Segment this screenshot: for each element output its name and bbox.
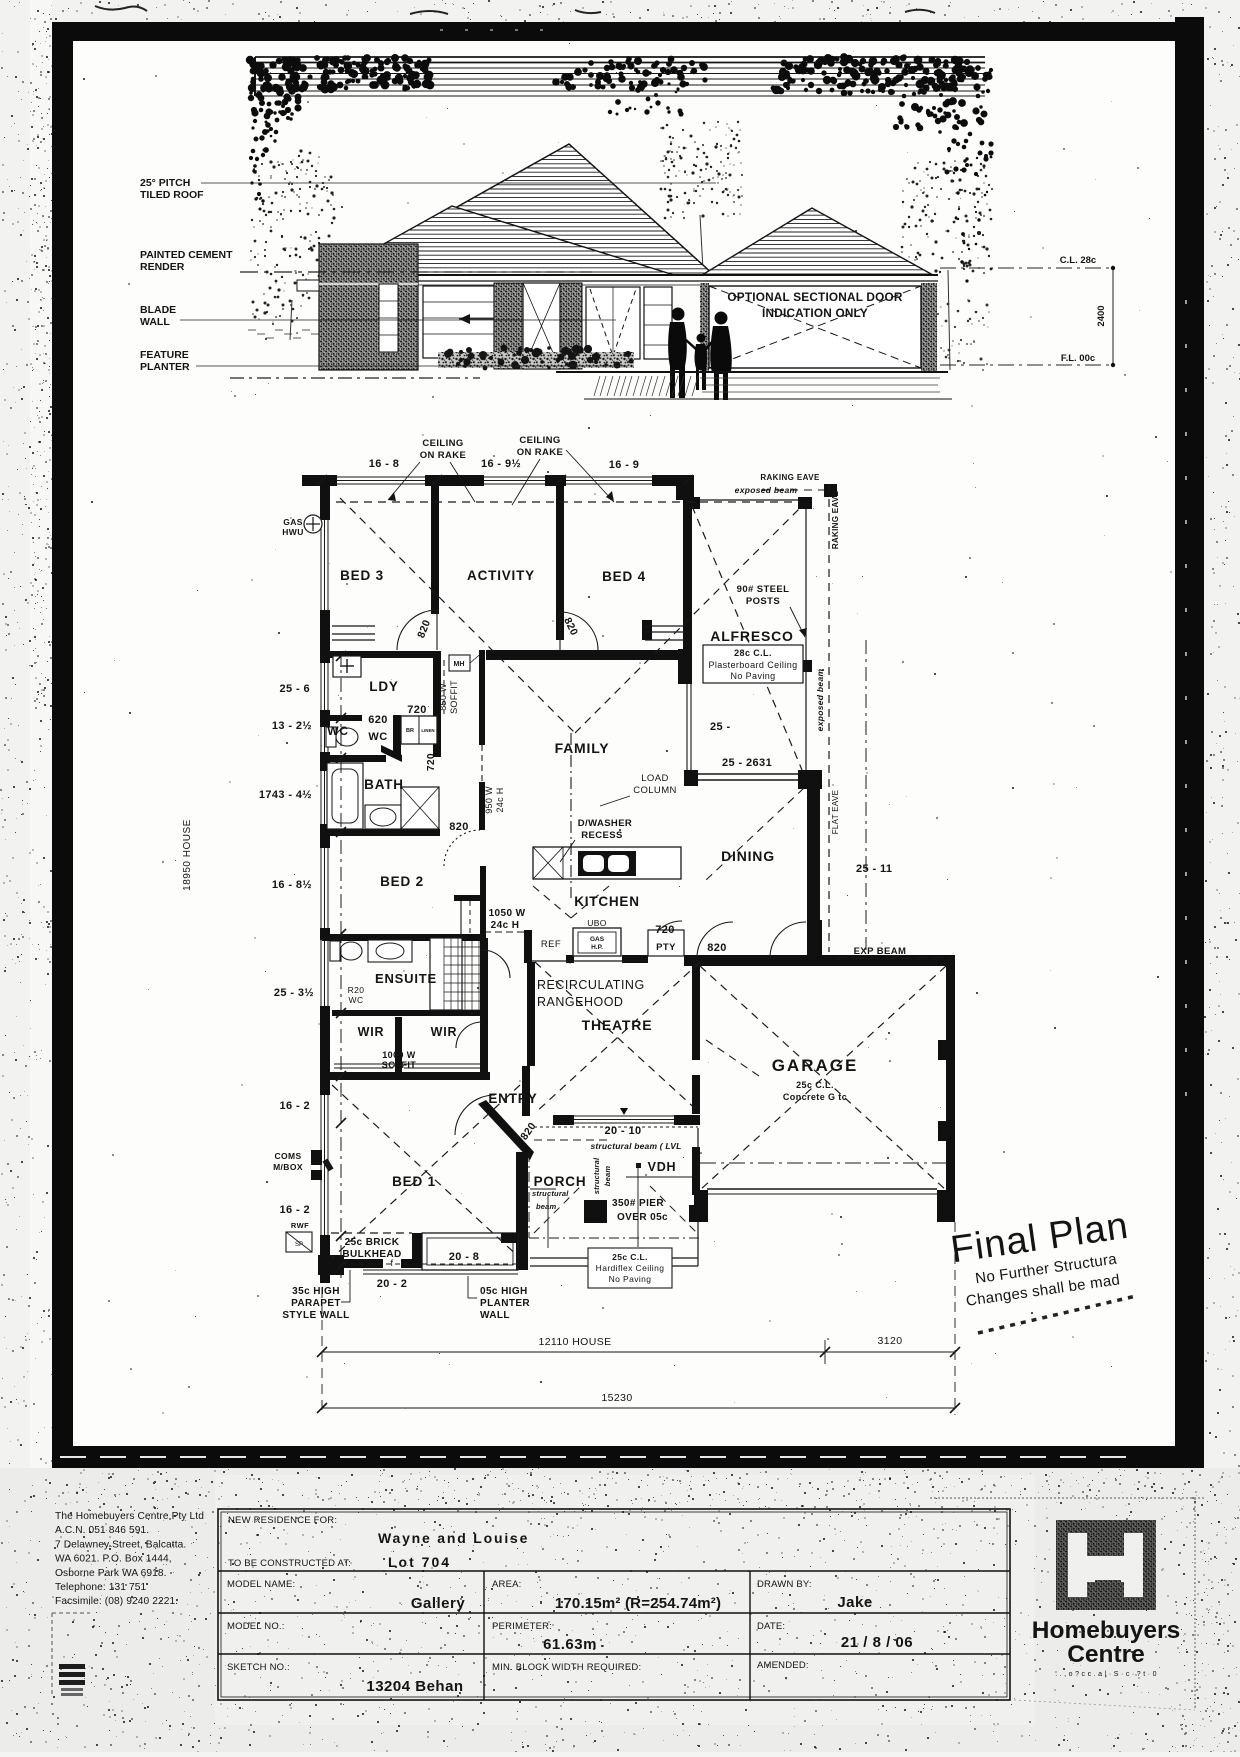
- svg-text:MH: MH: [454, 661, 465, 668]
- svg-text:20 - 8: 20 - 8: [449, 1251, 480, 1263]
- svg-text:RENDER: RENDER: [140, 261, 185, 273]
- svg-text:28c C.L.: 28c C.L.: [734, 648, 772, 658]
- svg-text:FEATURE: FEATURE: [140, 349, 189, 361]
- svg-text:720: 720: [655, 924, 675, 936]
- svg-text:12110 HOUSE: 12110 HOUSE: [538, 1336, 611, 1348]
- svg-text:Wayne and Louise: Wayne and Louise: [378, 1530, 529, 1546]
- svg-text:CEILING: CEILING: [519, 435, 560, 446]
- svg-text:AMENDED:: AMENDED:: [757, 1660, 809, 1671]
- svg-text:F.L. 00c: F.L. 00c: [1061, 353, 1095, 364]
- svg-text:BED 1: BED 1: [392, 1174, 436, 1189]
- svg-text:1743 - 4½: 1743 - 4½: [259, 789, 312, 801]
- svg-text:WALL: WALL: [480, 1310, 510, 1321]
- svg-text:950 W: 950 W: [484, 786, 494, 814]
- svg-text:CEILING: CEILING: [422, 438, 463, 449]
- svg-text:24c H: 24c H: [495, 787, 505, 812]
- svg-text:2400: 2400: [1096, 305, 1107, 326]
- svg-text:25 - 11: 25 - 11: [856, 863, 892, 875]
- svg-text:BED 4: BED 4: [602, 569, 646, 584]
- svg-text:Gallery: Gallery: [411, 1595, 466, 1612]
- svg-text:7 Delawney Street, Balcatta.: 7 Delawney Street, Balcatta.: [55, 1539, 186, 1550]
- svg-text:25c C.L.: 25c C.L.: [796, 1080, 834, 1090]
- svg-text:STYLE WALL: STYLE WALL: [282, 1310, 349, 1321]
- svg-text:25c C.L.: 25c C.L.: [612, 1252, 648, 1262]
- svg-text:PTY: PTY: [656, 942, 676, 953]
- svg-text:16 - 2: 16 - 2: [279, 1100, 310, 1112]
- svg-text:ON RAKE: ON RAKE: [517, 447, 564, 458]
- svg-text:RECIRCULATING: RECIRCULATING: [537, 978, 645, 992]
- svg-text:15230: 15230: [601, 1392, 632, 1404]
- svg-text:WIR: WIR: [431, 1025, 458, 1039]
- svg-text:PLANTER: PLANTER: [480, 1298, 530, 1309]
- svg-text:720: 720: [426, 753, 437, 771]
- svg-text:LOAD: LOAD: [641, 773, 668, 784]
- svg-text:820: 820: [707, 942, 727, 954]
- svg-text:Telephone: 131 751: Telephone: 131 751: [55, 1582, 147, 1593]
- svg-text:KITCHEN: KITCHEN: [574, 894, 640, 909]
- svg-text:D/WASHER: D/WASHER: [578, 818, 632, 829]
- svg-text:MIN. BLOCK WIDTH REQUIRED:: MIN. BLOCK WIDTH REQUIRED:: [492, 1662, 641, 1673]
- svg-text:16 - 8½: 16 - 8½: [272, 879, 312, 891]
- svg-text:Jake: Jake: [837, 1594, 872, 1611]
- svg-text:. . , o ? c c . a | · S · c ·: . . , o ? c c . a | · S · c · ? t · 0: [1055, 1671, 1157, 1678]
- svg-text:INDICATION ONLY: INDICATION ONLY: [762, 306, 868, 320]
- svg-text:Concrete G tc: Concrete G tc: [783, 1092, 847, 1102]
- svg-text:LINEN: LINEN: [421, 728, 434, 733]
- svg-text:OPTIONAL SECTIONAL DOOR: OPTIONAL SECTIONAL DOOR: [727, 290, 903, 304]
- svg-text:21 / 8 / 06: 21 / 8 / 06: [841, 1634, 913, 1651]
- svg-text:13 - 2½: 13 - 2½: [272, 720, 312, 732]
- svg-text:SOFFIT: SOFFIT: [382, 1060, 416, 1070]
- svg-text:beam: beam: [536, 1202, 557, 1211]
- svg-text:MODEL NAME:: MODEL NAME:: [227, 1579, 295, 1590]
- svg-text:WIR: WIR: [358, 1025, 385, 1039]
- svg-text:COMS: COMS: [274, 1151, 301, 1161]
- svg-text:No Paving: No Paving: [609, 1274, 652, 1284]
- svg-text:GAS: GAS: [283, 517, 303, 527]
- svg-text:WALL: WALL: [140, 316, 170, 328]
- svg-text:18950 HOUSE: 18950 HOUSE: [182, 819, 193, 891]
- svg-text:820: 820: [449, 821, 469, 833]
- svg-text:POSTS: POSTS: [746, 596, 780, 607]
- svg-text:ON RAKE: ON RAKE: [420, 450, 467, 461]
- svg-text:SKETCH NO.:: SKETCH NO.:: [227, 1662, 290, 1673]
- svg-text:structural beam ( LVL: structural beam ( LVL: [590, 1141, 681, 1151]
- svg-text:1050 W: 1050 W: [489, 908, 526, 919]
- svg-text:f: f: [391, 1258, 394, 1268]
- svg-text:25° PITCH: 25° PITCH: [140, 177, 190, 189]
- svg-text:No Paving: No Paving: [730, 671, 775, 681]
- svg-text:720: 720: [407, 704, 427, 716]
- svg-text:16 - 8: 16 - 8: [369, 458, 400, 470]
- svg-text:REF: REF: [541, 939, 561, 950]
- svg-text:BED 2: BED 2: [380, 874, 424, 889]
- svg-text:16 - 2: 16 - 2: [279, 1204, 310, 1216]
- svg-text:FAMILY: FAMILY: [555, 740, 610, 756]
- svg-text:1000 W: 1000 W: [382, 1050, 416, 1060]
- svg-text:BR: BR: [406, 728, 414, 734]
- svg-text:RECESS: RECESS: [581, 830, 622, 841]
- svg-text:HWU: HWU: [282, 527, 304, 537]
- svg-text:DINING: DINING: [721, 848, 775, 864]
- svg-text:WC: WC: [368, 731, 387, 743]
- svg-text:PARAPET: PARAPET: [291, 1298, 341, 1309]
- svg-text:exposed beam: exposed beam: [815, 669, 825, 732]
- svg-text:25 -: 25 -: [710, 721, 731, 733]
- svg-text:ACTIVITY: ACTIVITY: [467, 568, 535, 583]
- svg-text:BLADE: BLADE: [140, 304, 176, 316]
- svg-text:R20: R20: [348, 985, 365, 995]
- svg-text:25 - 2631: 25 - 2631: [722, 757, 772, 769]
- svg-text:C.L. 28c: C.L. 28c: [1060, 255, 1096, 266]
- svg-text:TILED ROOF: TILED ROOF: [140, 189, 204, 201]
- svg-text:MODEL NO.:: MODEL NO.:: [227, 1621, 285, 1632]
- svg-text:EXP BEAM: EXP BEAM: [854, 946, 907, 957]
- svg-text:ENTRY: ENTRY: [488, 1091, 537, 1106]
- svg-text:RWF: RWF: [291, 1221, 309, 1230]
- svg-text:PORCH: PORCH: [534, 1174, 587, 1189]
- svg-text:61.63m: 61.63m: [543, 1636, 597, 1653]
- svg-text:structural: structural: [592, 1157, 601, 1194]
- svg-text:Osborne Park WA 6918.: Osborne Park WA 6918.: [55, 1568, 167, 1579]
- svg-text:05c HIGH: 05c HIGH: [480, 1286, 528, 1297]
- svg-text:OVER 05c: OVER 05c: [617, 1212, 668, 1223]
- svg-text:Plasterboard Ceiling: Plasterboard Ceiling: [708, 660, 797, 670]
- svg-text:WA 6021. P.O. Box 1444,: WA 6021. P.O. Box 1444,: [55, 1554, 172, 1565]
- svg-text:LDY: LDY: [369, 679, 398, 694]
- svg-text:RAKING EAVE: RAKING EAVE: [831, 491, 840, 550]
- svg-text:PERIMETER:: PERIMETER:: [492, 1621, 552, 1632]
- svg-text:20 - 2: 20 - 2: [377, 1278, 408, 1290]
- svg-text:SOFFIT: SOFFIT: [449, 680, 459, 714]
- svg-text:NEW RESIDENCE FOR:: NEW RESIDENCE FOR:: [228, 1515, 337, 1526]
- svg-text:WC: WC: [349, 995, 364, 1005]
- svg-text:GARAGE: GARAGE: [772, 1056, 859, 1075]
- svg-text:TO BE CONSTRUCTED AT:: TO BE CONSTRUCTED AT:: [228, 1558, 351, 1569]
- svg-text:620: 620: [368, 714, 388, 726]
- svg-text:BATH: BATH: [364, 777, 404, 792]
- svg-text:UBO: UBO: [587, 918, 607, 928]
- svg-text:170.15m² (R=254.74m²): 170.15m² (R=254.74m²): [555, 1595, 721, 1612]
- svg-text:RAKING EAVE: RAKING EAVE: [760, 473, 820, 482]
- svg-text:FLAT EAVE: FLAT EAVE: [831, 790, 840, 835]
- svg-text:THEATRE: THEATRE: [582, 1017, 653, 1033]
- svg-text:Lot 704: Lot 704: [388, 1554, 451, 1570]
- svg-text:AREA:: AREA:: [492, 1579, 522, 1590]
- svg-text:ENSUITE: ENSUITE: [375, 971, 437, 986]
- svg-text:20 - 10: 20 - 10: [604, 1125, 641, 1137]
- svg-text:RANGEHOOD: RANGEHOOD: [537, 995, 623, 1009]
- svg-text:structural: structural: [532, 1189, 569, 1198]
- svg-text:BED 3: BED 3: [340, 568, 384, 583]
- svg-text:3120: 3120: [878, 1335, 903, 1347]
- svg-text:35c HIGH: 35c HIGH: [292, 1286, 340, 1297]
- svg-text:PAINTED CEMENT: PAINTED CEMENT: [140, 249, 233, 261]
- svg-text:25c BRICK: 25c BRICK: [345, 1237, 400, 1248]
- svg-text:ALFRESCO: ALFRESCO: [710, 628, 793, 644]
- svg-text:COLUMN: COLUMN: [633, 785, 677, 796]
- svg-text:Hardiflex Ceiling: Hardiflex Ceiling: [596, 1263, 665, 1273]
- svg-text:25 - 6: 25 - 6: [279, 683, 310, 695]
- svg-text:90# STEEL: 90# STEEL: [737, 584, 790, 595]
- svg-text:DATE:: DATE:: [757, 1621, 785, 1632]
- svg-text:DRAWN BY:: DRAWN BY:: [757, 1579, 812, 1590]
- svg-text:exposed beam: exposed beam: [735, 485, 798, 495]
- svg-text:13204 Behan: 13204 Behan: [366, 1678, 463, 1695]
- svg-text:H.P.: H.P.: [591, 944, 603, 951]
- svg-text:Centre: Centre: [1067, 1641, 1145, 1668]
- svg-text:WC: WC: [327, 724, 349, 738]
- svg-text:GAS: GAS: [590, 936, 605, 943]
- svg-text:beam: beam: [603, 1166, 612, 1187]
- svg-text:16 - 9½: 16 - 9½: [481, 458, 521, 470]
- svg-text:A.C.N. 051 846 591.: A.C.N. 051 846 591.: [55, 1525, 149, 1536]
- svg-text:24c H: 24c H: [491, 920, 520, 931]
- svg-text:PLANTER: PLANTER: [140, 361, 190, 373]
- svg-text:Facsimile: (08) 9240 2221.: Facsimile: (08) 9240 2221.: [55, 1596, 178, 1607]
- svg-text:VDH: VDH: [648, 1160, 677, 1174]
- svg-text:M/BOX: M/BOX: [273, 1162, 303, 1172]
- svg-text:16 - 9: 16 - 9: [609, 459, 640, 471]
- svg-text:850 W: 850 W: [438, 683, 448, 711]
- svg-text:SP: SP: [295, 1242, 303, 1248]
- svg-text:Homebuyers: Homebuyers: [1032, 1617, 1180, 1644]
- svg-text:25 - 3½: 25 - 3½: [274, 987, 314, 999]
- svg-text:The Homebuyers Centre Pty Ltd: The Homebuyers Centre Pty Ltd: [55, 1511, 204, 1522]
